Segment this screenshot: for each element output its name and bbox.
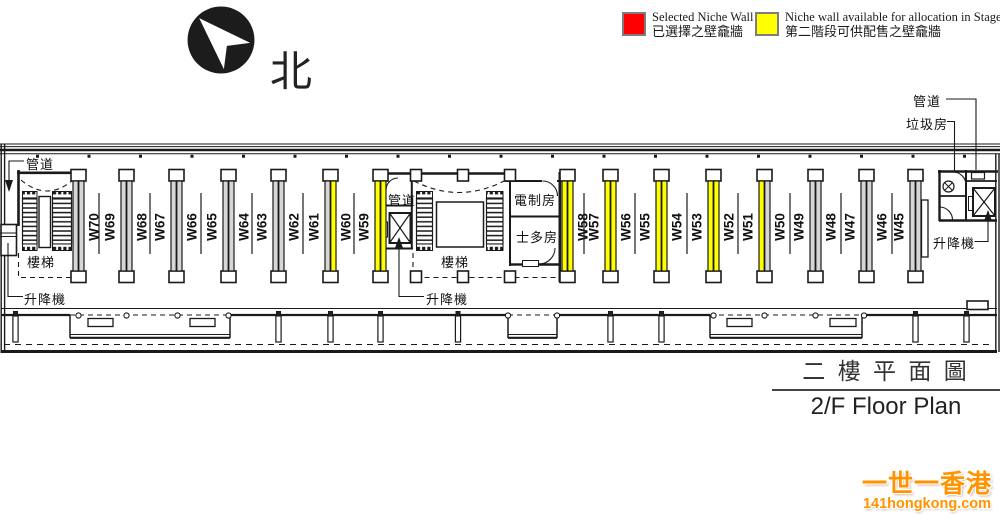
- niche-wall-w64[interactable]: [229, 181, 234, 271]
- niche-wall-w68[interactable]: [127, 181, 132, 271]
- label-duct-mid: 管道: [388, 190, 416, 209]
- label-electrical: 電制房: [514, 190, 556, 209]
- wall-label-w66: W66: [185, 213, 200, 241]
- wall-label-w48: W48: [824, 213, 839, 241]
- label-lift-right: 升降機: [933, 233, 975, 252]
- legend-label-zh: 第二階段可供配售之壁龕牆: [785, 25, 1000, 39]
- wall-label-w46: W46: [875, 213, 890, 241]
- wall-label-w61: W61: [307, 213, 322, 241]
- wall-end-column: [908, 170, 923, 182]
- wall-label-w64: W64: [237, 213, 252, 241]
- niche-wall-unit: W63W62: [255, 170, 302, 283]
- wall-end-column: [757, 170, 772, 182]
- floor-plan-drawing: W70W69W68W67W66W65W64W63W62W61W60W59W58W…: [0, 0, 1000, 520]
- wall-label-w49: W49: [792, 213, 807, 241]
- niche-wall-unit: W47W46: [843, 170, 890, 283]
- wall-end-column: [271, 170, 286, 182]
- wall-end-column: [71, 271, 86, 283]
- niche-wall-unit: W70: [71, 170, 102, 283]
- south-facade-strip: [1, 309, 997, 352]
- wall-end-column: [706, 170, 721, 182]
- wall-end-column: [119, 271, 134, 283]
- label-lift-left: 升降機: [24, 289, 66, 308]
- wall-label-w51: W51: [741, 213, 756, 241]
- niche-wall-unit: W59: [357, 170, 389, 283]
- title-rule: [772, 389, 1000, 391]
- niche-wall-w63[interactable]: [273, 181, 278, 271]
- wall-end-column: [560, 271, 575, 283]
- wall-end-column: [560, 170, 575, 182]
- niche-wall-w61[interactable]: [325, 181, 330, 271]
- niche-wall-unit: W61W60: [307, 170, 354, 283]
- niche-wall-w50[interactable]: [765, 181, 770, 271]
- wall-label-w59: W59: [357, 213, 372, 241]
- wall-label-w57: W57: [587, 213, 602, 241]
- wall-label-w68: W68: [135, 213, 150, 241]
- wall-end-column: [71, 170, 86, 182]
- niche-wall-w66[interactable]: [177, 181, 182, 271]
- niche-wall-w70[interactable]: [79, 181, 84, 271]
- niche-wall-w47[interactable]: [861, 181, 866, 271]
- niche-wall-w67[interactable]: [171, 181, 176, 271]
- page-title-en: 2/F Floor Plan: [772, 393, 1000, 421]
- label-duct-right: 管道: [913, 91, 941, 110]
- niche-wall-unit: W55W54: [638, 170, 685, 283]
- label-lift-mid: 升降機: [426, 289, 468, 308]
- wall-end-column: [603, 170, 618, 182]
- niche-wall-w48[interactable]: [816, 181, 821, 271]
- wall-end-column: [169, 170, 184, 182]
- watermark-name: 一世一香港: [862, 471, 992, 497]
- wall-end-column: [169, 271, 184, 283]
- niche-wall-w57[interactable]: [605, 181, 610, 271]
- floor-plan-page: W70W69W68W67W66W65W64W63W62W61W60W59W58W…: [0, 0, 1000, 520]
- niche-wall-w52[interactable]: [714, 181, 719, 271]
- niche-wall-w58[interactable]: [568, 181, 573, 271]
- wall-label-w63: W63: [255, 213, 270, 241]
- wall-end-column: [373, 271, 388, 283]
- legend-item-available: Niche wall available for allocation in S…: [755, 11, 1000, 38]
- wall-label-w55: W55: [638, 213, 653, 241]
- wall-label-w53: W53: [690, 213, 705, 241]
- wall-end-column: [271, 271, 286, 283]
- wall-end-column: [908, 271, 923, 283]
- down-arrow-icon: [5, 180, 13, 192]
- niche-wall-unit: W51W50: [741, 170, 788, 283]
- wall-label-w62: W62: [287, 213, 302, 241]
- wall-end-column: [808, 271, 823, 283]
- wall-end-column: [221, 271, 236, 283]
- wall-label-w47: W47: [843, 213, 858, 241]
- wall-label-w69: W69: [103, 213, 118, 241]
- north-arrow-icon: [186, 5, 256, 75]
- wall-label-w54: W54: [670, 213, 685, 241]
- wall-end-column: [808, 170, 823, 182]
- wall-end-column: [323, 271, 338, 283]
- wall-label-w56: W56: [619, 213, 634, 241]
- niche-wall-face: [916, 181, 921, 271]
- wall-label-w67: W67: [153, 213, 168, 241]
- wall-end-column: [119, 170, 134, 182]
- label-stairs-mid: 樓梯: [441, 252, 469, 271]
- niche-wall-face: [381, 181, 386, 271]
- wall-label-w50: W50: [773, 213, 788, 241]
- wall-end-column: [323, 170, 338, 182]
- niche-wall-unit: W49W48: [792, 170, 839, 283]
- wall-end-column: [654, 170, 669, 182]
- legend-item-selected: Selected Niche Wall 已選擇之壁龕牆: [622, 11, 754, 38]
- niche-wall-w55[interactable]: [656, 181, 661, 271]
- niche-wall-unit: W45: [892, 170, 924, 283]
- north-wall-band: [0, 144, 1000, 156]
- niche-wall-face: [73, 181, 78, 271]
- label-refuse: 垃圾房: [906, 114, 948, 133]
- wall-end-column: [757, 271, 772, 283]
- north-label: 北: [270, 38, 312, 99]
- niche-wall-unit: W69W68: [103, 170, 150, 283]
- label-store: 士多房: [516, 227, 558, 246]
- niche-wall-w56[interactable]: [611, 181, 616, 271]
- legend-swatch-available: [755, 12, 779, 36]
- wall-label-w45: W45: [892, 213, 907, 241]
- wall-label-w60: W60: [339, 213, 354, 241]
- w45-side-panel: [922, 200, 929, 257]
- legend-label-zh: 已選擇之壁龕牆: [652, 25, 754, 39]
- niche-wall-w49[interactable]: [810, 181, 815, 271]
- niche-wall-w65[interactable]: [223, 181, 228, 271]
- niche-wall-w62[interactable]: [279, 181, 284, 271]
- left-stair-core: [0, 161, 74, 297]
- niche-wall-unit: W65W64: [205, 170, 252, 283]
- niche-wall-unit: W57W56: [587, 170, 634, 283]
- legend-label-en: Selected Niche Wall: [652, 11, 754, 25]
- niche-wall-w45[interactable]: [910, 181, 915, 271]
- niche-wall-w53[interactable]: [708, 181, 713, 271]
- niche-wall-w69[interactable]: [121, 181, 126, 271]
- niche-wall-unit: W53W52: [690, 170, 737, 283]
- niche-wall-w51[interactable]: [759, 181, 764, 271]
- wall-end-column: [603, 271, 618, 283]
- wall-end-column: [654, 271, 669, 283]
- niche-wall-unit: W67W66: [153, 170, 200, 283]
- page-title-zh: 二 樓 平 面 圖: [772, 352, 1000, 386]
- niche-wall-face: [562, 181, 567, 271]
- north-compass: 北: [186, 5, 306, 90]
- niche-wall-w59[interactable]: [375, 181, 380, 271]
- site-watermark: 一世一香港 141hongkong.com: [862, 471, 992, 512]
- wall-label-w52: W52: [722, 213, 737, 241]
- wall-end-column: [373, 170, 388, 182]
- niche-wall-w54[interactable]: [662, 181, 667, 271]
- label-stairs-left: 樓梯: [27, 252, 55, 271]
- niche-wall-w46[interactable]: [867, 181, 872, 271]
- legend-label-en: Niche wall available for allocation in S…: [785, 11, 1000, 25]
- niche-wall-w60[interactable]: [331, 181, 336, 271]
- wall-end-column: [859, 170, 874, 182]
- wall-end-column: [221, 170, 236, 182]
- label-duct-left: 管道: [26, 154, 54, 173]
- wall-end-column: [706, 271, 721, 283]
- legend-swatch-selected: [622, 12, 646, 36]
- title-block: 二 樓 平 面 圖 2/F Floor Plan: [772, 352, 1000, 421]
- wall-end-column: [859, 271, 874, 283]
- wall-label-w65: W65: [205, 213, 220, 241]
- watermark-url: 141hongkong.com: [862, 497, 992, 512]
